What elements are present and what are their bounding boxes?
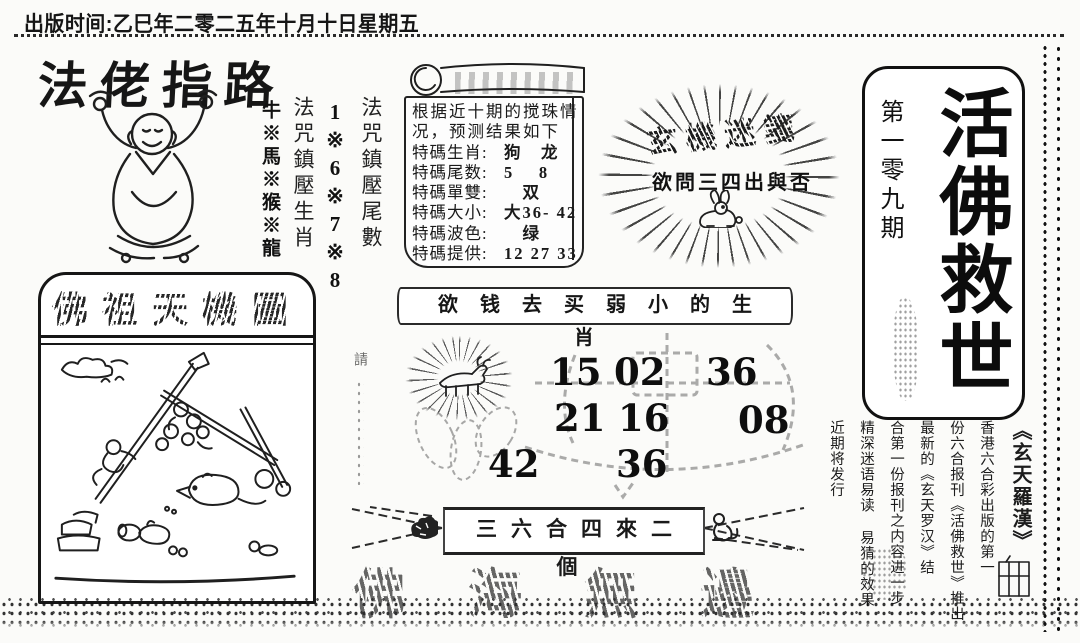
lucky-number: 08 <box>738 398 790 442</box>
row-value: 双 <box>504 183 541 203</box>
prediction-row-numbers: 特碼提供: 12 27 33 <box>412 244 578 264</box>
side-note-smudge <box>356 380 364 485</box>
row-label: 特碼單雙: <box>412 183 504 203</box>
masthead-box: 第一零九期 活佛救世 <box>862 66 1025 420</box>
stamp-box-decoration <box>996 554 1034 600</box>
row-value: 12 27 33 <box>504 244 578 264</box>
row-value: 狗 龙 <box>504 143 560 163</box>
prediction-row-color: 特碼波色: 绿 <box>412 224 578 244</box>
prediction-intro-1: 根据近十期的搅珠情 <box>412 102 578 122</box>
intro-text: 况，预测结果如下 <box>412 122 560 142</box>
spell-column-zodiac-label: 法咒鎮壓生肖 <box>292 96 313 252</box>
lucky-number: 15 <box>550 350 602 394</box>
lucky-number: 42 <box>488 442 540 486</box>
right-dotted-border-outer <box>1055 44 1062 632</box>
row-label: 特碼生肖: <box>412 143 504 163</box>
scroll-faded-text <box>455 72 575 94</box>
scanned-lottery-sheet: { "header": { "publish_line": "出版时间:乙巳年二… <box>0 0 1080 643</box>
lucky-number: 16 <box>618 396 670 440</box>
print-speckle <box>862 548 908 600</box>
row-label: 特碼尾数: <box>412 163 504 183</box>
row-label: 特碼大小: <box>412 203 504 223</box>
print-speckle <box>893 297 919 401</box>
prediction-row-oddeven: 特碼單雙: 双 <box>412 183 578 203</box>
lucky-number: 21 <box>554 396 606 440</box>
tiger-icon <box>406 512 438 544</box>
intro-text: 根据近十期的搅珠情 <box>412 102 579 122</box>
picture-box-separator <box>41 335 313 345</box>
scene-illustration <box>44 347 308 595</box>
rabbit-icon <box>694 190 746 228</box>
slogan-banner: 欲钱去买弱小的生肖 <box>397 287 793 325</box>
spell-column-zodiac-value: 牛※馬※猴※龍 <box>260 100 279 261</box>
spell-column-tail-label: 法咒鎮壓尾數 <box>360 96 381 252</box>
row-label: 特碼波色: <box>412 224 504 244</box>
masthead-title: 活佛救世 <box>932 85 1006 397</box>
lucky-number: 36 <box>706 350 758 394</box>
monkey-icon <box>705 510 741 546</box>
prediction-row-zodiac: 特碼生肖: 狗 龙 <box>412 143 578 163</box>
row-label: 特碼提供: <box>412 244 504 264</box>
prediction-intro-2: 况，预测结果如下 <box>412 122 578 142</box>
picture-box-header: 佛祖天機圖 <box>41 281 313 333</box>
row-value: 5 8 <box>504 163 549 183</box>
prediction-list: 根据近十期的搅珠情 况，预测结果如下 特碼生肖: 狗 龙 特碼尾数: 5 8 特… <box>412 102 578 264</box>
laughing-buddha-illustration <box>40 86 268 272</box>
spell-column-tail-value: 1※6※7※8 <box>324 100 345 296</box>
prediction-row-tail: 特碼尾数: 5 8 <box>412 163 578 183</box>
ribbon-slogan: 三六合四來二個 <box>443 507 705 555</box>
lucky-number: 36 <box>616 442 668 486</box>
prediction-row-size: 特碼大小: 大36- 42 <box>412 203 578 223</box>
row-value: 绿 <box>504 224 541 244</box>
picture-box: 佛祖天機圖 <box>38 272 316 604</box>
side-note-text: 請 <box>352 352 366 370</box>
issue-number: 第一零九期 <box>877 99 901 244</box>
dotted-separator <box>14 34 1064 37</box>
row-value: 大36- 42 <box>504 203 577 223</box>
lucky-number: 02 <box>614 350 666 394</box>
right-dotted-border <box>1042 44 1048 632</box>
